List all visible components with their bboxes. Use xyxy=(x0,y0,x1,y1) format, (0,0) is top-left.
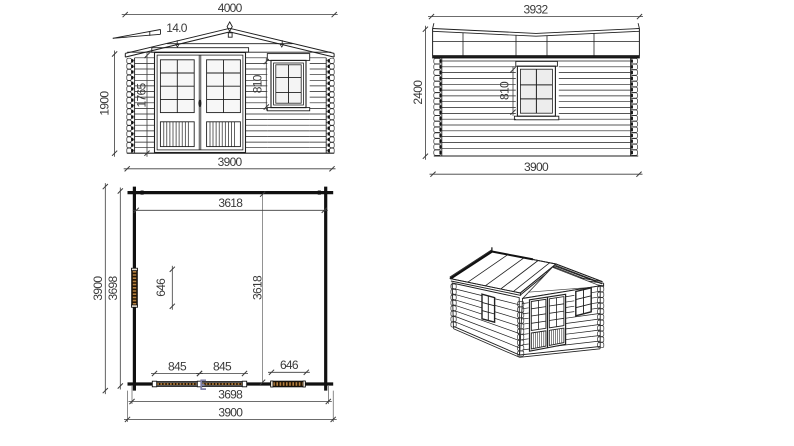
svg-text:3932: 3932 xyxy=(524,2,549,16)
svg-text:14.0: 14.0 xyxy=(166,21,188,35)
svg-text:3618: 3618 xyxy=(251,275,265,300)
svg-text:646: 646 xyxy=(280,358,299,372)
svg-text:3900: 3900 xyxy=(524,160,549,174)
svg-text:3698: 3698 xyxy=(106,276,120,301)
svg-text:1900: 1900 xyxy=(98,91,112,116)
svg-text:1765: 1765 xyxy=(135,83,149,108)
svg-text:845: 845 xyxy=(213,359,232,373)
svg-text:810: 810 xyxy=(498,81,512,100)
svg-text:3900: 3900 xyxy=(91,276,105,301)
svg-text:845: 845 xyxy=(168,359,187,373)
svg-text:3900: 3900 xyxy=(218,155,243,169)
svg-text:3618: 3618 xyxy=(218,196,243,210)
svg-text:810: 810 xyxy=(250,74,264,93)
svg-text:2400: 2400 xyxy=(411,80,425,105)
svg-text:3698: 3698 xyxy=(218,387,243,401)
svg-text:3900: 3900 xyxy=(218,405,243,419)
svg-text:4000: 4000 xyxy=(218,1,243,15)
svg-text:646: 646 xyxy=(154,278,168,297)
